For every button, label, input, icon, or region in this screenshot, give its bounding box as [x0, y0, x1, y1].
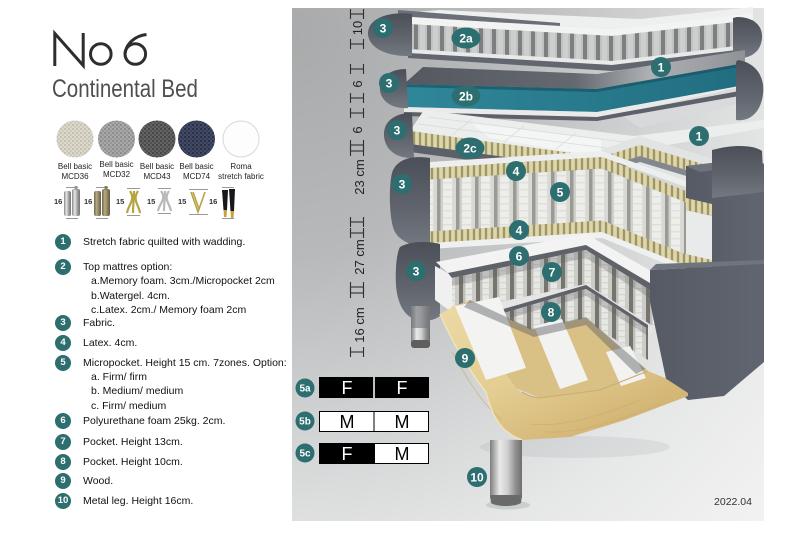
svg-text:5b: 5b [299, 417, 311, 428]
svg-text:2c: 2c [463, 142, 477, 156]
svg-text:3: 3 [399, 178, 406, 192]
svg-text:7: 7 [549, 266, 556, 280]
svg-text:3: 3 [394, 124, 401, 138]
svg-text:5: 5 [557, 186, 564, 200]
svg-text:27 cm: 27 cm [352, 239, 367, 274]
svg-text:5a: 5a [299, 384, 311, 395]
svg-text:10: 10 [350, 21, 365, 35]
svg-text:16 cm: 16 cm [352, 307, 367, 342]
svg-text:23 cm: 23 cm [352, 159, 367, 194]
svg-text:3: 3 [413, 265, 420, 279]
svg-text:4: 4 [513, 165, 520, 179]
svg-text:M: M [395, 444, 410, 464]
svg-text:M: M [340, 412, 355, 432]
svg-text:M: M [395, 412, 410, 432]
svg-text:8: 8 [548, 306, 555, 320]
svg-text:10: 10 [470, 471, 484, 485]
svg-text:6: 6 [350, 80, 365, 87]
svg-text:F: F [342, 378, 353, 398]
svg-text:1: 1 [658, 61, 665, 75]
svg-text:2a: 2a [459, 32, 473, 46]
svg-text:2b: 2b [459, 90, 473, 104]
svg-text:6: 6 [516, 250, 523, 264]
svg-text:4: 4 [516, 224, 523, 238]
svg-text:1: 1 [696, 130, 703, 144]
svg-text:F: F [342, 444, 353, 464]
svg-text:3: 3 [386, 77, 393, 91]
svg-text:6: 6 [350, 126, 365, 133]
svg-text:9: 9 [462, 352, 469, 366]
svg-text:3: 3 [380, 22, 387, 36]
svg-text:F: F [397, 378, 408, 398]
svg-text:2022.04: 2022.04 [714, 496, 752, 508]
svg-text:5c: 5c [299, 449, 311, 460]
